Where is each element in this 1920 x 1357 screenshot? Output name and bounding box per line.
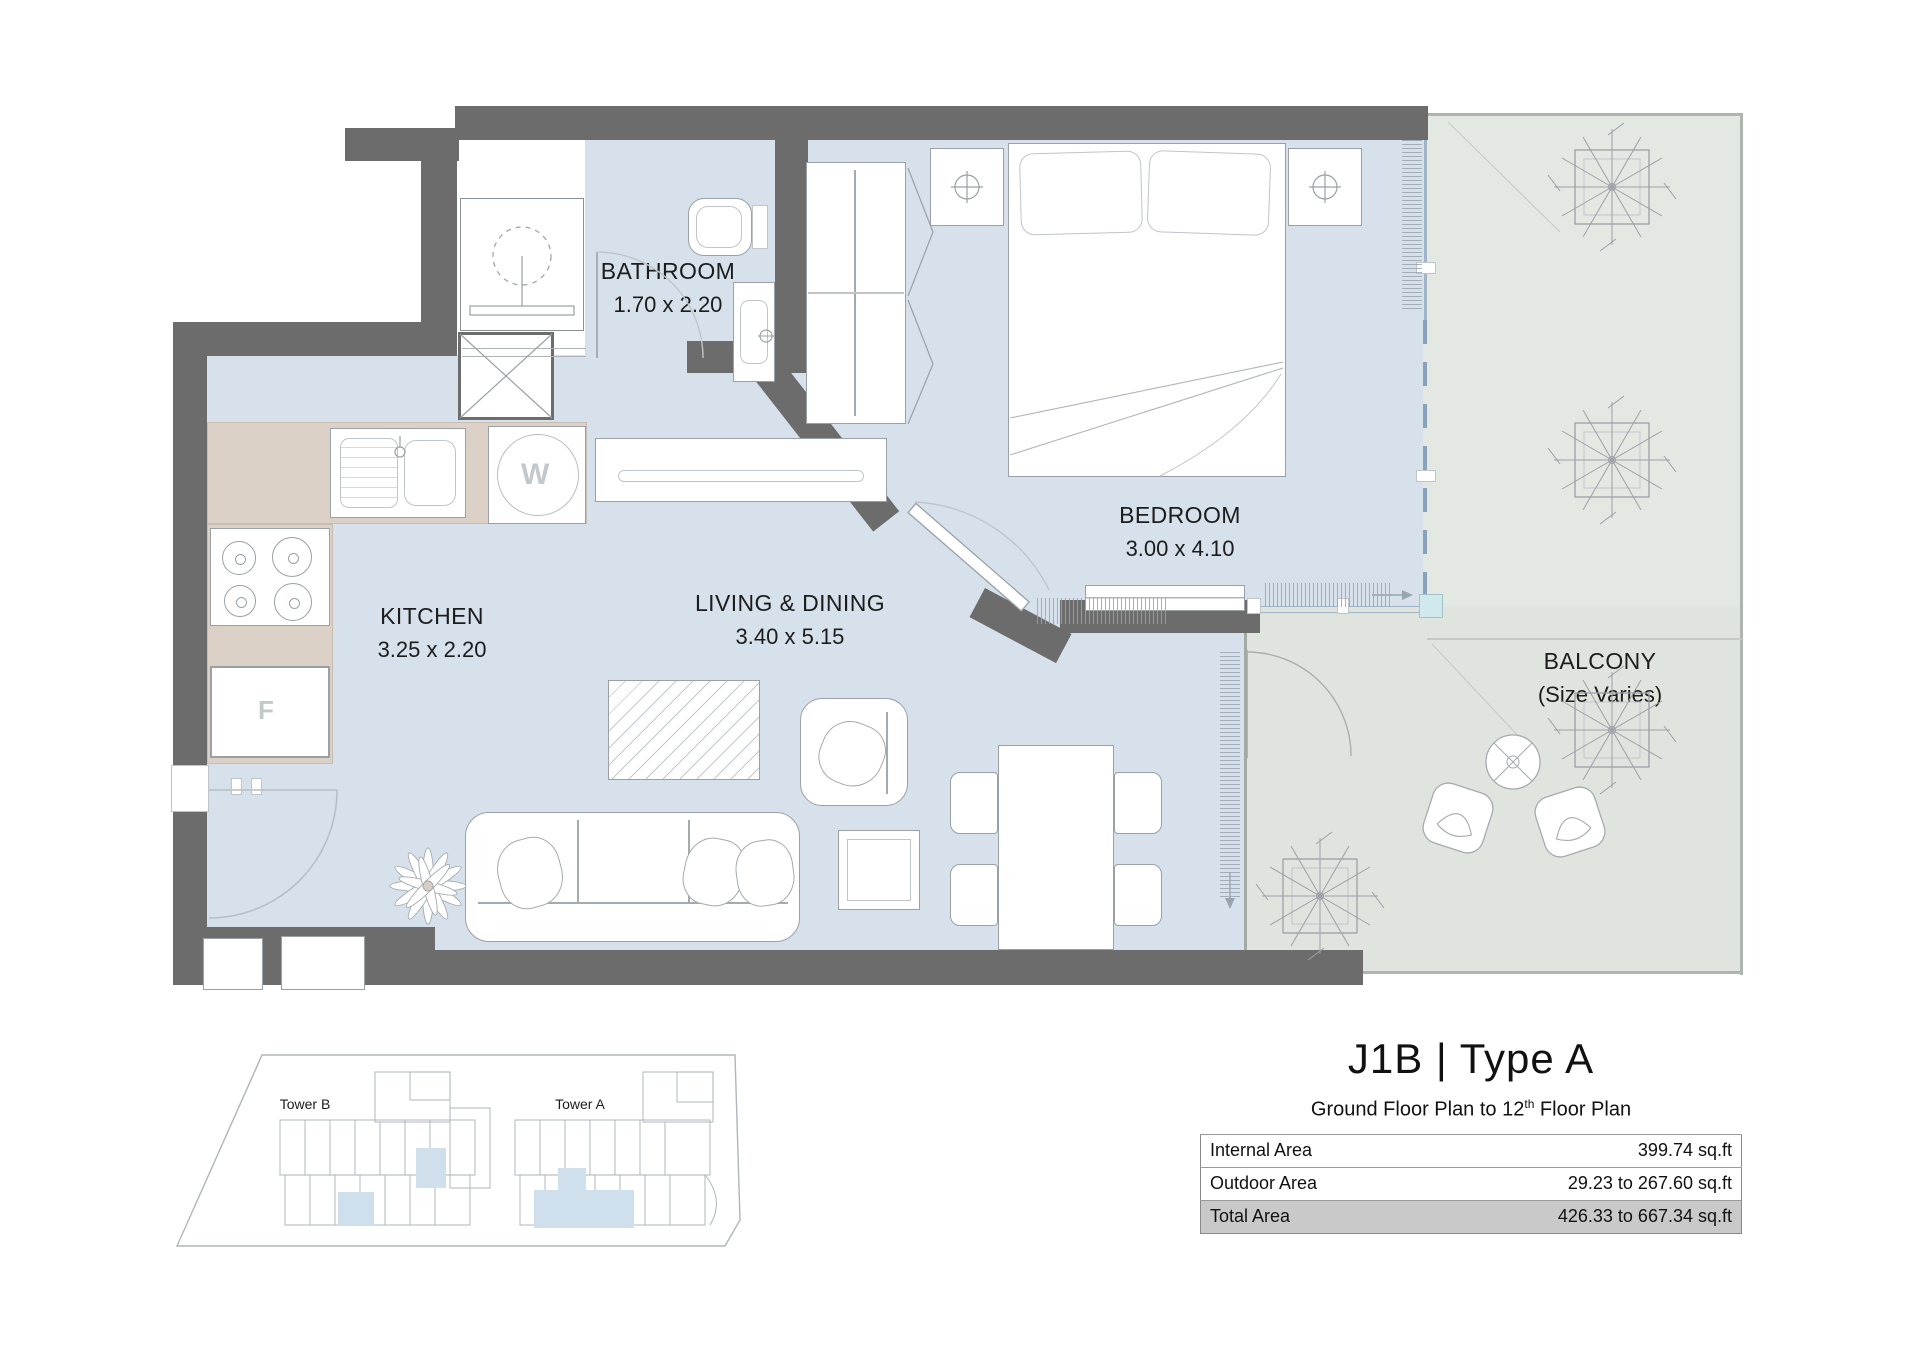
wardrobe-shelf <box>808 292 904 294</box>
area-label: Internal Area <box>1201 1134 1414 1167</box>
burner-icon <box>224 585 256 617</box>
table-row-total: Total Area 426.33 to 667.34 sq.ft <box>1201 1200 1742 1233</box>
dining-chair <box>950 864 998 926</box>
room-label-bathroom: BATHROOM 1.70 x 2.20 <box>601 258 735 318</box>
curtain-icon <box>1262 583 1390 607</box>
entry-frame-tick <box>231 778 242 795</box>
area-value: 29.23 to 267.60 sq.ft <box>1414 1167 1742 1200</box>
toilet-seat <box>696 206 742 248</box>
area-value: 399.74 sq.ft <box>1414 1134 1742 1167</box>
table-row: Internal Area 399.74 sq.ft <box>1201 1134 1742 1167</box>
bed-pillow <box>1019 150 1143 235</box>
wall-top <box>455 106 1428 140</box>
room-dims: 1.70 x 2.20 <box>601 292 735 318</box>
curtain-icon <box>1034 598 1168 624</box>
burner-icon <box>222 541 256 575</box>
room-label-bedroom: BEDROOM 3.00 x 4.10 <box>1119 502 1241 562</box>
pocket-door <box>462 348 586 357</box>
sliding-door-dashes <box>1423 320 1427 604</box>
balcony-edge-top <box>1427 113 1742 116</box>
wall-bottom-main <box>435 950 1363 985</box>
room-name: BEDROOM <box>1119 502 1241 529</box>
room-label-living: LIVING & DINING 3.40 x 5.15 <box>695 590 885 650</box>
subtitle-prefix: Ground Floor Plan to 12 <box>1311 1099 1524 1121</box>
unit-title: J1B | Type A <box>1200 1035 1742 1083</box>
balcony-floor-upper <box>1427 115 1742 640</box>
subtitle-sup: th <box>1524 1097 1534 1111</box>
entry-frame-tick <box>251 778 262 795</box>
sofa-divider <box>577 820 579 904</box>
room-name: LIVING & DINING <box>695 590 885 617</box>
room-dims: (Size Varies) <box>1538 682 1662 708</box>
window-bottom-left-1 <box>203 938 263 990</box>
curtain-icon <box>1402 140 1422 312</box>
subtitle-suffix: Floor Plan <box>1534 1099 1631 1121</box>
floor-plan-page: W F BATHROOM 1.70 x 2.20 KITCHE <box>0 0 1920 1357</box>
burner-icon <box>274 583 312 621</box>
room-name: KITCHEN <box>378 603 487 630</box>
duct-shaft <box>458 332 554 420</box>
window-bottom-left-2 <box>281 936 365 990</box>
entry-opening <box>171 765 209 812</box>
coffee-table <box>608 680 760 780</box>
room-label-kitchen: KITCHEN 3.25 x 2.20 <box>378 603 487 663</box>
tower-b-label: Tower B <box>280 1096 331 1112</box>
curtain-icon <box>1220 652 1240 900</box>
dining-table <box>998 745 1114 950</box>
burner-icon <box>272 537 312 577</box>
wall-kitchen-top <box>173 322 425 356</box>
wall-left <box>173 322 207 769</box>
corner-glass-block <box>1419 594 1443 618</box>
room-label-balcony: BALCONY (Size Varies) <box>1538 648 1662 708</box>
window-mullion <box>1416 470 1436 482</box>
side-table-top <box>847 839 911 901</box>
balcony-edge-bottom <box>1363 971 1742 974</box>
room-dims: 3.40 x 5.15 <box>695 624 885 650</box>
sink-basin <box>404 440 456 506</box>
armchair-armrest <box>886 712 888 794</box>
area-value: 426.33 to 667.34 sq.ft <box>1414 1200 1742 1233</box>
room-dims: 3.00 x 4.10 <box>1119 536 1241 562</box>
room-dims: 3.25 x 2.20 <box>378 637 487 663</box>
wall-shower-left <box>421 128 457 356</box>
tv-screen <box>618 470 864 482</box>
fridge-label: F <box>258 695 274 726</box>
nightstand <box>930 148 1004 226</box>
balcony-floor-lower <box>1245 607 1742 973</box>
wall-bathroom-right <box>775 140 808 343</box>
bed-pillow <box>1147 150 1272 236</box>
dining-chair <box>950 772 998 834</box>
nightstand <box>1288 148 1362 226</box>
dining-chair <box>1114 772 1162 834</box>
table-row: Outdoor Area 29.23 to 267.60 sq.ft <box>1201 1167 1742 1200</box>
room-name: BALCONY <box>1538 648 1662 675</box>
floor-range-subtitle: Ground Floor Plan to 12th Floor Plan <box>1200 1097 1742 1122</box>
area-table: Internal Area 399.74 sq.ft Outdoor Area … <box>1200 1134 1742 1234</box>
shower-room <box>460 198 584 331</box>
site-plan: Tower B Tower A <box>165 1050 745 1255</box>
sink-basin <box>340 438 398 508</box>
dining-chair <box>1114 864 1162 926</box>
tower-a-label: Tower A <box>555 1096 605 1112</box>
area-label: Outdoor Area <box>1201 1167 1414 1200</box>
window-mullion <box>1247 598 1261 614</box>
living-balcony-divider <box>1244 607 1247 973</box>
area-label: Total Area <box>1201 1200 1414 1233</box>
title-block: J1B | Type A Ground Floor Plan to 12th F… <box>1200 1035 1742 1234</box>
toilet-tank <box>752 205 768 249</box>
room-name: BATHROOM <box>601 258 735 285</box>
balcony-mid-line <box>1427 638 1742 640</box>
balcony-edge-right <box>1740 113 1743 975</box>
washer-label: W <box>521 458 549 492</box>
vanity-basin <box>740 300 768 364</box>
